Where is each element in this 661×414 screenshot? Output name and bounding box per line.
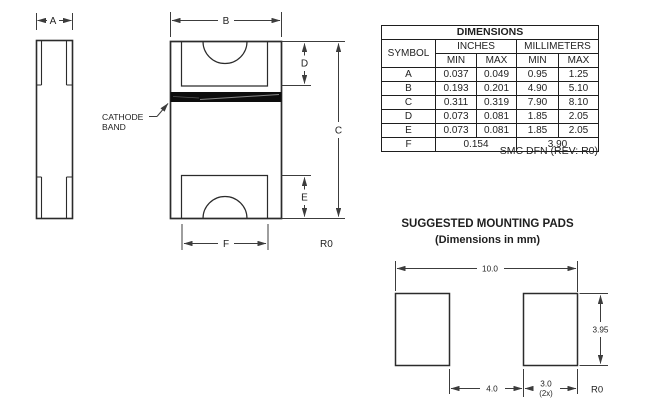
package-views-drawing: A B xyxy=(0,0,370,260)
table-row: B 0.193 0.201 4.90 5.10 xyxy=(382,82,599,96)
package-drawing-page: A B xyxy=(0,0,661,414)
col-group-millimeters: MILLIMETERS xyxy=(517,40,599,54)
symbol-cell: E xyxy=(382,124,436,138)
cathode-band-leader xyxy=(149,104,168,117)
value-cell: 8.10 xyxy=(559,96,599,110)
table-row: C 0.311 0.319 7.90 8.10 xyxy=(382,96,599,110)
value-cell: 2.05 xyxy=(559,110,599,124)
top-terminal-pad xyxy=(182,42,268,87)
col-header-inches-min: MIN xyxy=(436,54,477,68)
left-mounting-pad xyxy=(396,294,450,366)
cathode-band-label-line1: CATHODE xyxy=(102,112,144,122)
value-cell: 0.073 xyxy=(436,124,477,138)
dimensions-table-title: DIMENSIONS xyxy=(382,26,599,40)
dim-pad-width-qty: (2x) xyxy=(539,389,553,398)
value-cell: 0.193 xyxy=(436,82,477,96)
dim-f-label: F xyxy=(223,239,229,250)
value-cell: 0.081 xyxy=(477,110,517,124)
value-cell: 5.10 xyxy=(559,82,599,96)
value-cell: 0.049 xyxy=(477,68,517,82)
mounting-pads-drawing: 10.0 3.95 4.0 3.0 (2x) R0 xyxy=(380,252,661,414)
value-cell: 1.25 xyxy=(559,68,599,82)
dim-d-label: D xyxy=(301,59,308,70)
value-cell: 0.037 xyxy=(436,68,477,82)
value-cell: 0.081 xyxy=(477,124,517,138)
dim-pad-height-value: 3.95 xyxy=(593,326,609,335)
value-cell: 0.073 xyxy=(436,110,477,124)
value-cell: 2.05 xyxy=(559,124,599,138)
bottom-extension-lines xyxy=(450,369,578,397)
cathode-band xyxy=(171,92,282,102)
dim-e xyxy=(282,176,346,219)
value-cell: 1.85 xyxy=(517,124,559,138)
value-cell: 1.85 xyxy=(517,110,559,124)
dim-a-label: A xyxy=(50,16,57,27)
dimensions-table: DIMENSIONS SYMBOL INCHES MILLIMETERS MIN… xyxy=(381,25,599,152)
table-row: A 0.037 0.049 0.95 1.25 xyxy=(382,68,599,82)
value-cell: 7.90 xyxy=(517,96,559,110)
value-cell: 0.201 xyxy=(477,82,517,96)
symbol-cell: D xyxy=(382,110,436,124)
dim-b-label: B xyxy=(223,16,230,27)
cathode-band-label-line2: BAND xyxy=(102,122,126,132)
value-cell: 0.311 xyxy=(436,96,477,110)
col-header-symbol: SYMBOL xyxy=(382,40,436,68)
package-view xyxy=(171,42,282,219)
side-view-terminals xyxy=(37,41,73,219)
dim-total-width-value: 10.0 xyxy=(482,265,498,274)
dim-c-label: C xyxy=(335,126,342,137)
col-group-inches: INCHES xyxy=(436,40,517,54)
table-row: D 0.073 0.081 1.85 2.05 xyxy=(382,110,599,124)
value-cell: 0.319 xyxy=(477,96,517,110)
package-outline xyxy=(171,42,282,219)
value-cell: 0.95 xyxy=(517,68,559,82)
symbol-cell: A xyxy=(382,68,436,82)
dim-e-label: E xyxy=(301,193,308,204)
col-header-inches-max: MAX xyxy=(477,54,517,68)
col-header-mm-max: MAX xyxy=(559,54,599,68)
side-view xyxy=(37,41,73,219)
mounting-pads-subtitle: (Dimensions in mm) xyxy=(380,234,595,246)
symbol-cell: B xyxy=(382,82,436,96)
mounting-pads-title: SUGGESTED MOUNTING PADS xyxy=(380,218,595,230)
package-view-rev-label: R0 xyxy=(320,239,333,250)
package-rev-caption: SMC DFN (REV: R0) xyxy=(381,145,598,157)
value-cell: 4.90 xyxy=(517,82,559,96)
dim-d xyxy=(282,42,346,86)
dimensions-table-wrap: DIMENSIONS SYMBOL INCHES MILLIMETERS MIN… xyxy=(381,25,599,152)
symbol-cell: C xyxy=(382,96,436,110)
table-row: E 0.073 0.081 1.85 2.05 xyxy=(382,124,599,138)
dim-gap-value: 4.0 xyxy=(486,385,498,394)
right-mounting-pad xyxy=(524,294,578,366)
col-header-mm-min: MIN xyxy=(517,54,559,68)
dim-pad-width-value: 3.0 xyxy=(540,380,552,389)
mounting-pads-rev-label: R0 xyxy=(591,385,603,396)
bottom-terminal-pad xyxy=(182,176,268,219)
